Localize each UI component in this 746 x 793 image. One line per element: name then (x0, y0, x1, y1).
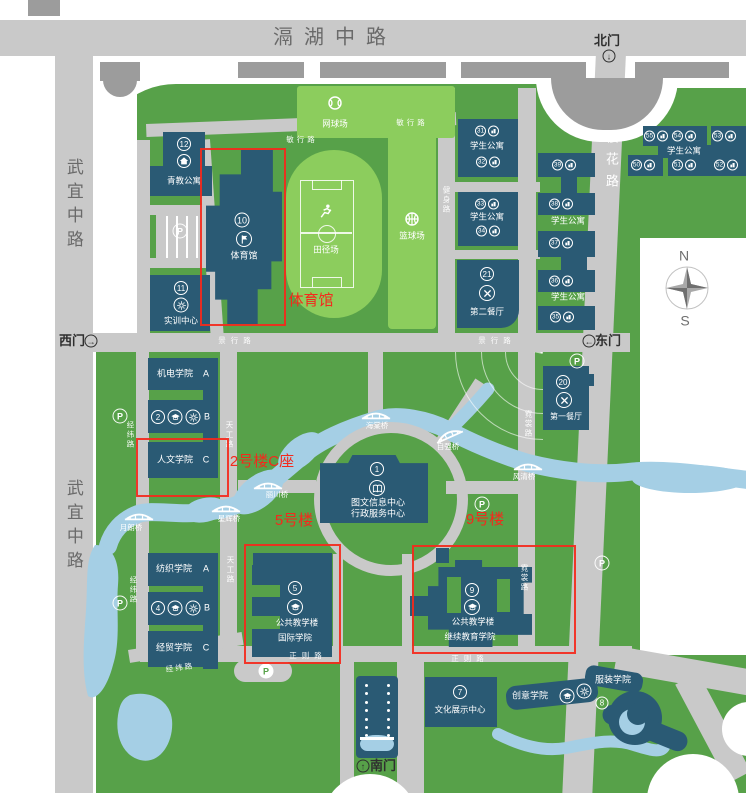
gym-highlight-box (200, 148, 286, 326)
building-5-highlight-box (244, 544, 341, 664)
gym-highlight-label: 体育馆 (288, 293, 333, 309)
annotation-layer: 体育馆2号楼C座5号楼9号楼 (0, 0, 746, 793)
building-2c-highlight-box (136, 438, 229, 497)
building-9-highlight-box (412, 545, 576, 654)
campus-map: 网球场田径场篮球场 12青教公寓10体育馆11实训中心31学生公寓3233学生公… (0, 0, 746, 793)
building-9-highlight-label: 9号楼 (466, 512, 504, 528)
building-5-highlight-label: 5号楼 (275, 513, 313, 529)
building-2c-highlight-label: 2号楼C座 (230, 454, 294, 470)
